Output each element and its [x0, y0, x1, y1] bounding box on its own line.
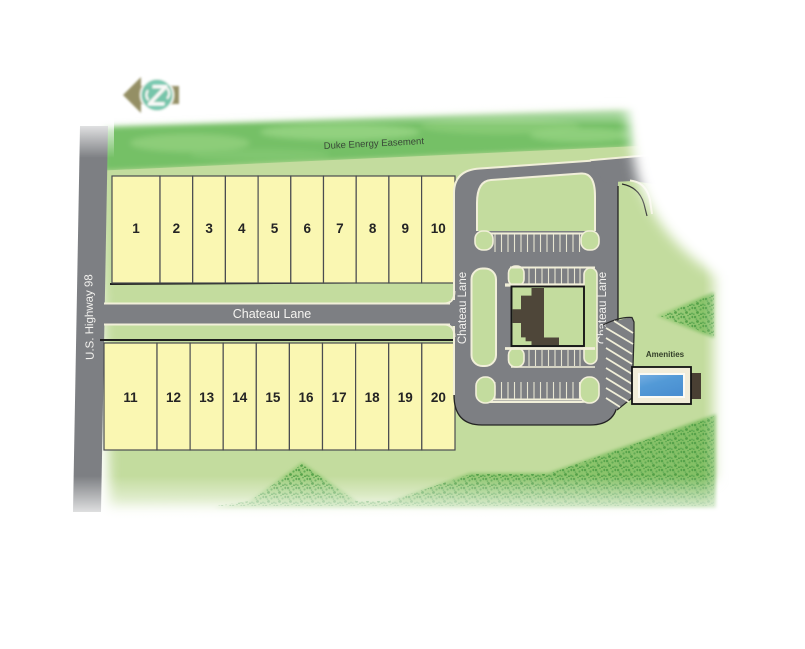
- svg-text:15: 15: [265, 390, 281, 405]
- svg-text:11: 11: [123, 390, 138, 405]
- svg-text:4: 4: [238, 221, 246, 236]
- svg-text:18: 18: [365, 390, 381, 405]
- svg-text:20: 20: [431, 390, 446, 405]
- svg-text:2: 2: [173, 221, 181, 236]
- svg-text:19: 19: [398, 390, 413, 405]
- svg-text:U.S. Highway 98: U.S. Highway 98: [83, 274, 96, 360]
- svg-text:9: 9: [402, 221, 410, 236]
- svg-text:5: 5: [271, 221, 279, 236]
- svg-text:12: 12: [166, 390, 181, 405]
- svg-text:3: 3: [205, 221, 213, 236]
- svg-text:17: 17: [332, 390, 347, 405]
- svg-text:Chateau Lane: Chateau Lane: [233, 307, 312, 321]
- svg-text:10: 10: [431, 221, 446, 236]
- svg-text:16: 16: [298, 390, 314, 405]
- svg-text:13: 13: [199, 390, 215, 405]
- svg-text:1: 1: [132, 221, 140, 236]
- svg-text:14: 14: [232, 390, 248, 405]
- svg-text:8: 8: [369, 221, 377, 236]
- svg-text:7: 7: [336, 221, 344, 236]
- svg-text:Chateau Lane: Chateau Lane: [457, 272, 469, 344]
- svg-text:6: 6: [303, 221, 311, 236]
- svg-text:Z: Z: [147, 80, 168, 113]
- svg-text:Amenities: Amenities: [646, 350, 685, 359]
